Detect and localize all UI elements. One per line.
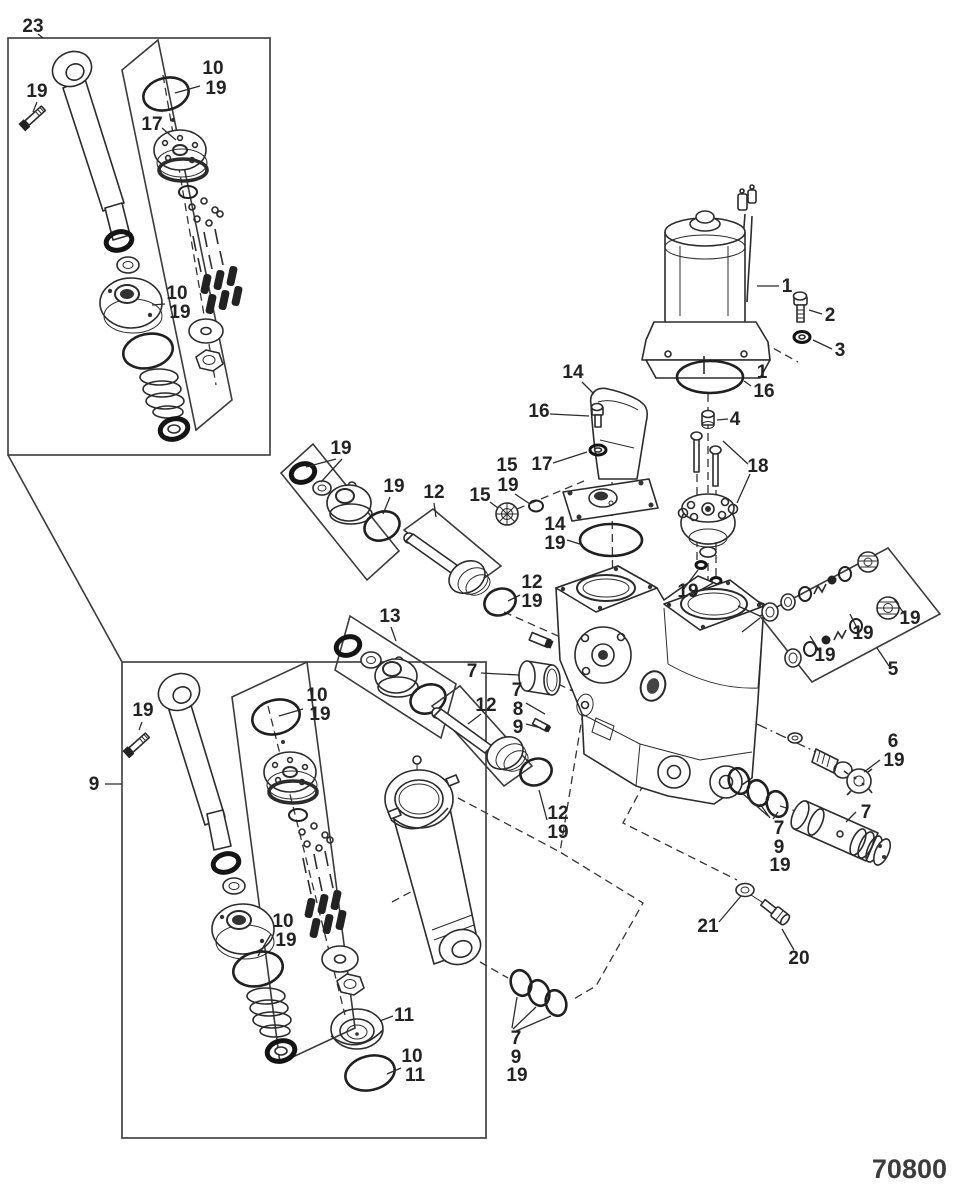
part-trim-rod-23	[47, 45, 130, 240]
callout-1-40: 1	[757, 362, 768, 383]
callout-19-28: 19	[547, 822, 568, 843]
callout-14-35: 14	[544, 514, 566, 535]
part-pump-18	[679, 494, 738, 557]
callout-7-51: 7	[861, 802, 872, 823]
callout-19-6: 19	[169, 302, 190, 323]
callout-10-11: 10	[272, 911, 293, 932]
part-end-cap-11	[331, 1009, 383, 1049]
callout-10-14: 10	[401, 1046, 422, 1067]
callout-9-7: 9	[89, 774, 100, 795]
part-bolt-20	[759, 898, 791, 927]
callout-19-33: 19	[497, 475, 518, 496]
callout-9-25: 9	[513, 717, 524, 738]
part-bolt-2	[794, 292, 808, 322]
callout-16-30: 16	[528, 401, 549, 422]
callout-19-45: 19	[814, 645, 835, 666]
kit-box-12-upper	[404, 509, 501, 600]
callout-10-5: 10	[166, 283, 187, 304]
part-spring	[140, 369, 184, 418]
part-motor-1	[642, 185, 770, 378]
part-oring-19	[120, 329, 176, 373]
figure-number: 70800	[872, 1154, 947, 1184]
callout-13-21: 13	[379, 606, 400, 627]
part-trim-cylinder	[385, 756, 486, 970]
part-pin-8	[533, 719, 552, 733]
callout-5-48: 5	[888, 659, 899, 680]
callout-1-37: 1	[782, 276, 793, 297]
part-washer	[117, 257, 139, 273]
callout-19-12: 19	[275, 930, 296, 951]
callout-7-23: 7	[512, 680, 523, 701]
callout-7-57: 7	[511, 1028, 522, 1049]
exploded-parts-diagram: 2319101917101991910191019111011191912121…	[0, 0, 964, 1198]
callout-19-59: 19	[506, 1065, 527, 1086]
part-oring-12-19	[516, 754, 555, 790]
callout-21-55: 21	[697, 916, 719, 937]
part-coupler-4	[702, 411, 714, 429]
callout-19-47: 19	[899, 608, 920, 629]
callout-7-22: 7	[467, 661, 478, 682]
callout-12-19: 12	[521, 572, 542, 593]
callout-19-10: 19	[309, 704, 330, 725]
part-spring	[247, 988, 291, 1037]
callout-19-16: 19	[330, 438, 351, 459]
callout-12-26: 12	[475, 695, 496, 716]
callout-17-31: 17	[531, 454, 552, 475]
callout-2-38: 2	[825, 305, 836, 326]
callout-6-49: 6	[888, 731, 899, 752]
part-filter-15	[496, 503, 518, 525]
callout-19-1: 19	[26, 81, 47, 102]
callout-19-46: 19	[852, 623, 873, 644]
callout-7-52: 7	[774, 818, 785, 839]
part-oring-14-19	[580, 524, 642, 556]
callout-19-50: 19	[883, 750, 904, 771]
part-seal-19	[696, 562, 706, 569]
callout-10-9: 10	[306, 685, 327, 706]
callout-4-42: 4	[730, 409, 741, 430]
part-washer-21	[736, 884, 765, 905]
upper-piston-kit	[281, 444, 404, 580]
part-bolt-19	[18, 105, 46, 132]
callout-12-27: 12	[547, 803, 568, 824]
kit-box-23	[8, 38, 270, 662]
kit-connector-line	[8, 455, 122, 662]
callout-19-54: 19	[769, 855, 790, 876]
callout-18-43: 18	[747, 456, 768, 477]
part-trim-rod-9	[153, 667, 231, 850]
callout-15-32: 15	[496, 455, 518, 476]
part-bolt-19	[122, 732, 150, 759]
callout-16-41: 16	[753, 381, 774, 402]
part-washer	[223, 878, 245, 894]
part-pin	[529, 633, 553, 649]
part-tilt-pin-7	[788, 798, 894, 867]
callout-12-18: 12	[423, 482, 444, 503]
callout-19-3: 19	[205, 78, 226, 99]
callout-15-34: 15	[469, 485, 491, 506]
part-oring-group-bottom	[507, 968, 569, 1019]
part-seal	[211, 851, 241, 875]
callout-11-15: 11	[405, 1065, 426, 1086]
callout-19-8: 19	[132, 700, 153, 721]
callout-3-39: 3	[835, 340, 846, 361]
callout-19-44: 19	[677, 581, 698, 602]
kit-box-13	[334, 616, 456, 738]
callout-19-20: 19	[521, 591, 542, 612]
callout-23-0: 23	[22, 16, 43, 37]
part-seal	[104, 229, 134, 253]
part-seal-3	[794, 332, 810, 343]
kit-box-9	[122, 662, 486, 1138]
parts-diagram-page: 2319101917101991910191019111011191912121…	[0, 0, 964, 1198]
part-pump-screws-18	[691, 432, 721, 486]
callout-19-36: 19	[544, 533, 565, 554]
callout-17-4: 17	[141, 114, 162, 135]
part-bushing-7	[519, 661, 560, 695]
part-oring-15-19	[529, 501, 543, 512]
part-manual-release-valve-6	[788, 733, 872, 795]
callout-19-17: 19	[383, 476, 404, 497]
valve-kit-parts-row1	[762, 552, 878, 621]
callout-11-13: 11	[394, 1005, 415, 1026]
callout-14-29: 14	[562, 362, 584, 383]
spring-cluster	[304, 889, 347, 938]
callout-10-2: 10	[202, 58, 223, 79]
callout-20-56: 20	[788, 948, 809, 969]
